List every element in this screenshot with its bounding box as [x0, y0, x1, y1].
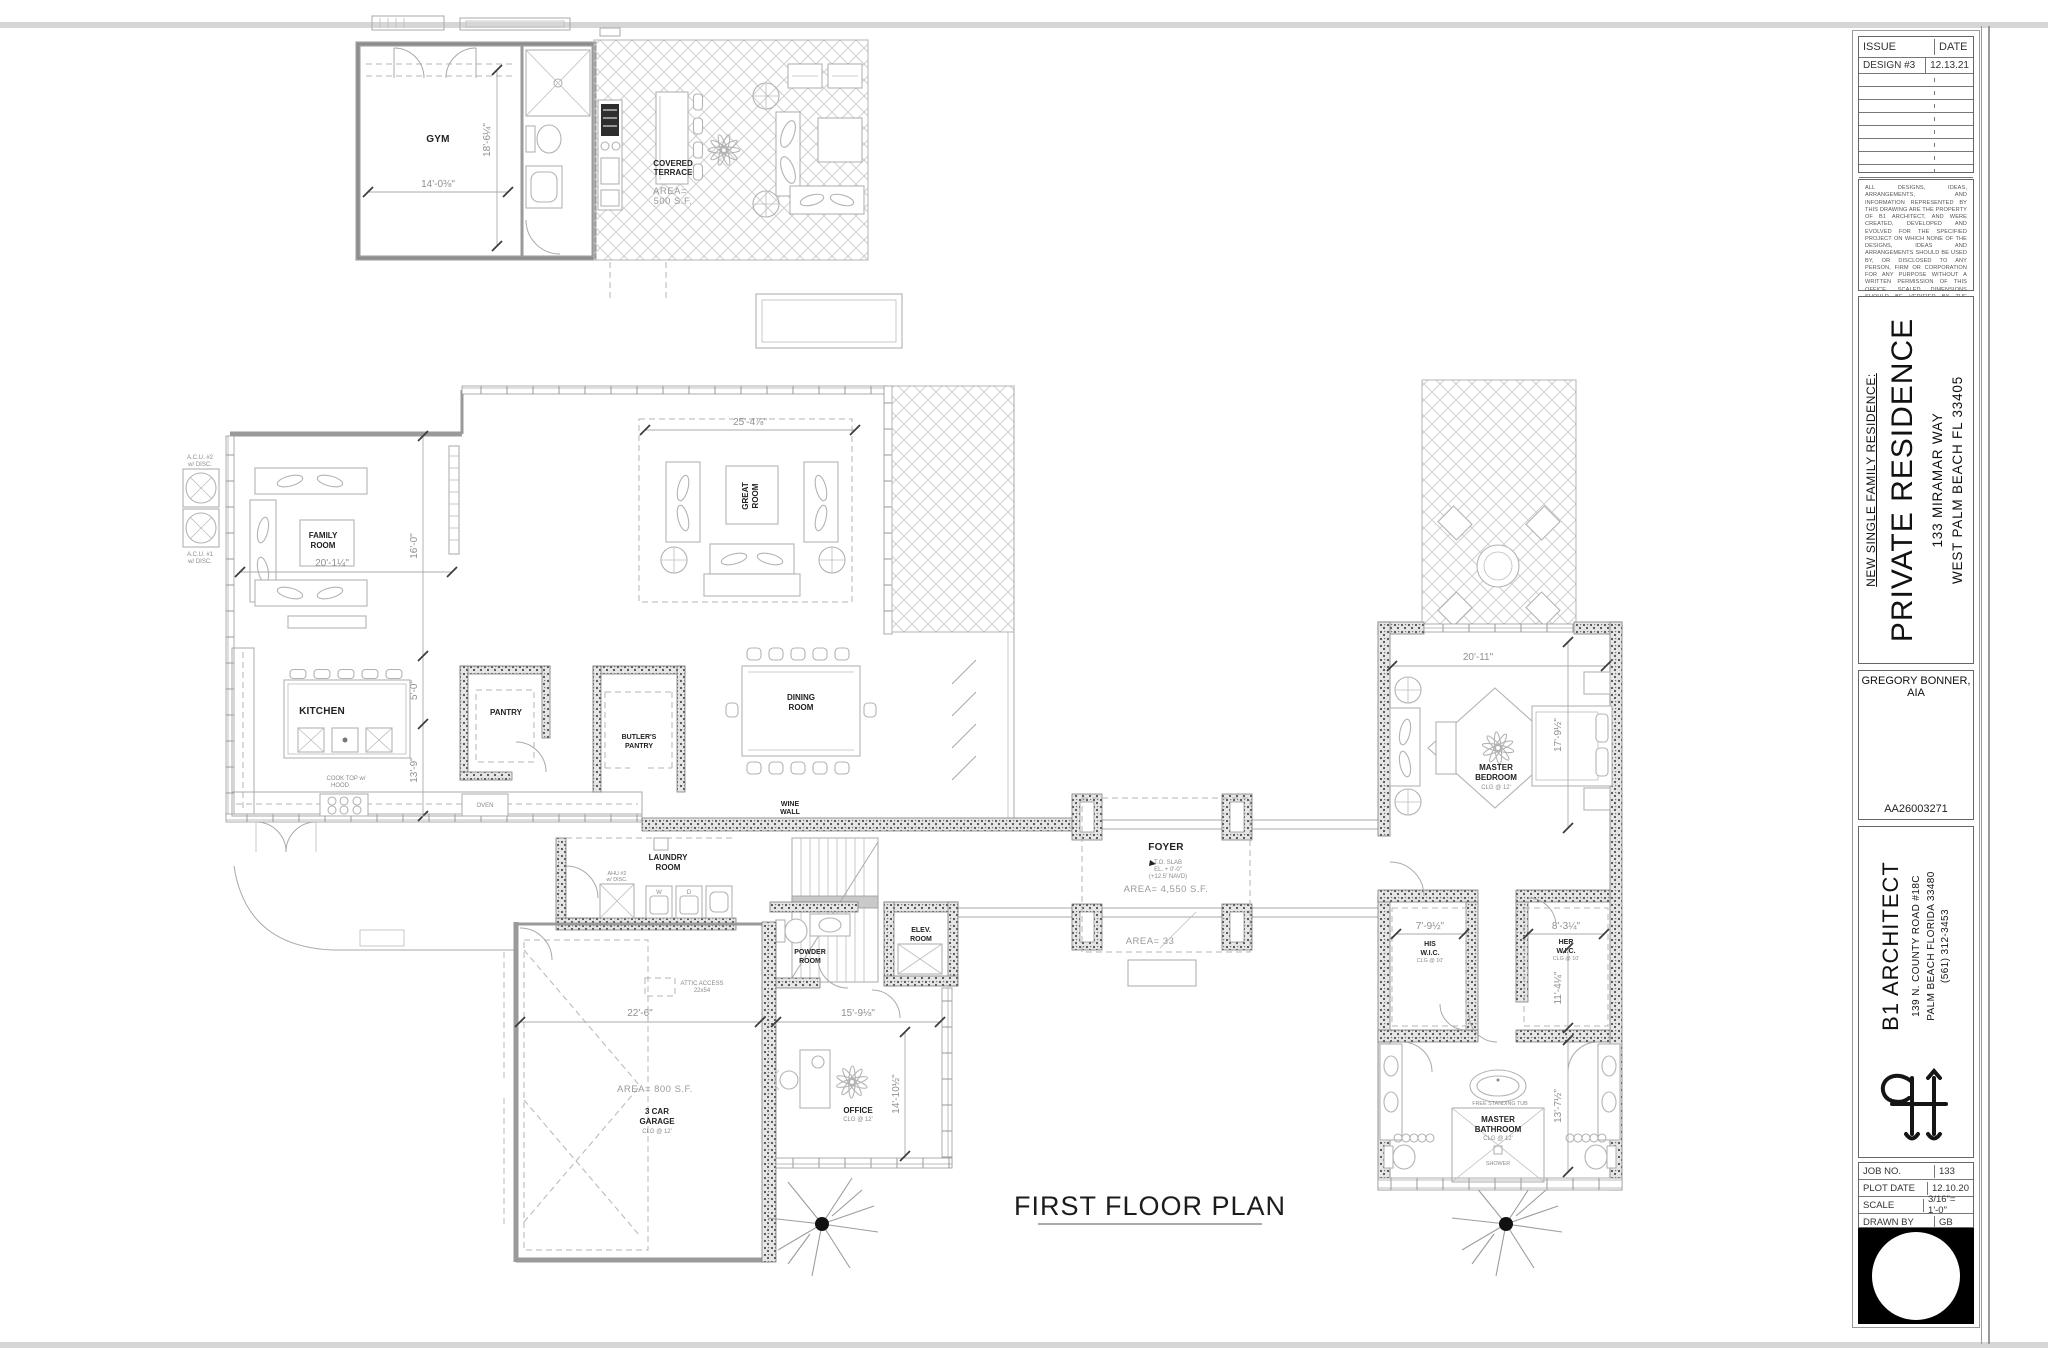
gym-bathroom — [526, 50, 590, 208]
architect-license: AA26003271 — [1859, 803, 1973, 815]
project-kicker: NEW SINGLE FAMILY RESIDENCE: — [1864, 373, 1878, 587]
job-no-row: JOB NO. 133 — [1859, 1163, 1973, 1180]
svg-text:BEDROOM: BEDROOM — [1475, 773, 1517, 782]
master-bedroom-label: MASTER — [1479, 763, 1513, 772]
svg-text:w/ DISC.: w/ DISC. — [605, 877, 627, 883]
palm-tree — [768, 1178, 878, 1276]
his-wic: HIS W.I.C. CLG @ 10' 7'-9½" — [1391, 908, 1469, 1030]
her-wic: HER W.I.C. CLG @ 10' 8'-3¼" 11'-4¼" — [1523, 898, 1609, 1033]
svg-text:EL. + 0'-0": EL. + 0'-0" — [1154, 867, 1182, 873]
svg-text:16'-0": 16'-0" — [409, 533, 420, 559]
powder-label: POWDER — [794, 949, 826, 956]
pool — [756, 294, 902, 348]
date-col: DATE — [1935, 39, 1972, 55]
svg-text:ROOM: ROOM — [656, 863, 681, 872]
project-address1: 133 MIRAMAR WAY — [1928, 412, 1948, 547]
issue-row: DESIGN #3 12.13.21 — [1859, 58, 1973, 74]
cooktop-label: COOK TOP w/ — [326, 776, 365, 782]
foyer-label: FOYER — [1148, 842, 1184, 853]
sheet-logo — [1858, 1228, 1974, 1324]
svg-text:CLG @ 12': CLG @ 12' — [1481, 785, 1511, 791]
office: OFFICE CLG @ 12' 15'-9⅛" 14'-10½" — [771, 988, 952, 1168]
great-width-dim: 25'-4⅞" — [733, 417, 767, 428]
his-wic-dim: 7'-9½" — [1416, 921, 1445, 932]
architect-box: GREGORY BONNER, AIA AA26003271 — [1858, 670, 1974, 820]
project-address2: WEST PALM BEACH FL 33405 — [1948, 376, 1968, 584]
master-height-dim: 17'-9½" — [1553, 718, 1564, 752]
architect-name: GREGORY BONNER, AIA — [1859, 675, 1973, 699]
office-width-dim: 15'-9⅛" — [841, 1008, 875, 1019]
issue-row-empty — [1859, 126, 1973, 139]
svg-text:w/ DISC.: w/ DISC. — [187, 559, 212, 565]
info-table: JOB NO. 133 PLOT DATE 12.10.20 SCALE 3/1… — [1858, 1162, 1974, 1228]
tub-label: FREE STANDING TUB — [1472, 1101, 1528, 1107]
scale-row: SCALE 3/16"= 1'-0" — [1859, 1197, 1973, 1214]
svg-text:ROOM: ROOM — [789, 703, 814, 712]
svg-text:ROOM: ROOM — [751, 483, 760, 508]
bath-height-dim: 13'-7½" — [1553, 1089, 1564, 1123]
gallery: WINE WALL — [642, 801, 1380, 917]
issue-col: ISSUE — [1859, 39, 1935, 55]
office-label: OFFICE — [843, 1106, 873, 1115]
garage-label: 3 CAR — [645, 1107, 669, 1116]
floor-plan-svg: GYM 14'-0⅜" 18'-6¼" — [0, 0, 1855, 1365]
laundry-room: LAUNDRY ROOM AHU #2 w/ DISC. W D — [556, 838, 736, 930]
gym-width-dim: 14'-0⅜" — [421, 179, 455, 190]
butlers-pantry: BUTLER'S PANTRY — [593, 666, 685, 792]
svg-text:13'-9": 13'-9" — [409, 757, 420, 783]
plan-title: FIRST FLOOR PLAN — [1014, 1191, 1286, 1224]
issue-table-header: ISSUE DATE — [1859, 37, 1973, 58]
her-wic-height-dim: 11'-4¼" — [1552, 971, 1564, 1005]
shower-label: SHOWER — [1486, 1161, 1510, 1167]
svg-text:CLG @ 12': CLG @ 12' — [1483, 1136, 1513, 1142]
issue-table: ISSUE DATE DESIGN #3 12.13.21 — [1858, 36, 1974, 173]
dining-room: DINING ROOM — [726, 648, 976, 780]
svg-text:w/ DISC.: w/ DISC. — [187, 462, 212, 468]
ac-units: A.C.U. #2 w/ DISC. A.C.U. #1 w/ DISC. — [183, 455, 219, 565]
svg-text:500 S.F.: 500 S.F. — [654, 196, 693, 207]
butlers-pantry-label: BUTLER'S — [622, 734, 657, 741]
courtyard-terrace — [1422, 380, 1576, 626]
pantry-label: PANTRY — [490, 708, 523, 717]
left-dim-chain: 16'-0" 5'-0" 13'-9" — [409, 431, 428, 821]
dining-room-label: DINING — [787, 693, 815, 702]
project-name: PRIVATE RESIDENCE — [1886, 318, 1920, 642]
kitchen-label: KITCHEN — [299, 706, 345, 717]
svg-text:ROOM: ROOM — [910, 936, 932, 943]
svg-text:FIRST FLOOR PLAN: FIRST FLOOR PLAN — [1014, 1191, 1286, 1221]
family-width-dim: 20'-1¼" — [315, 557, 349, 569]
gym-height-dim: 18'-6¼" — [481, 123, 493, 157]
slab-note: T.O. SLAB — [1154, 860, 1182, 866]
svg-text:5'-0": 5'-0" — [409, 680, 420, 700]
firm-address2: PALM BEACH FLORIDA 33480 — [1925, 871, 1940, 1020]
svg-text:(+12.5' NAVD): (+12.5' NAVD) — [1149, 874, 1187, 880]
issue-row-empty — [1859, 87, 1973, 100]
covered-terrace: COVERED TERRACE AREA= 500 S.F. — [594, 40, 868, 300]
issue-row-empty — [1859, 113, 1973, 126]
washer-label: W — [656, 890, 662, 896]
palm-tree — [1452, 1178, 1562, 1276]
his-wic-label: HIS — [1424, 941, 1436, 948]
svg-text:W.I.C.: W.I.C. — [1420, 950, 1439, 957]
firm-monogram-icon — [1874, 1068, 1958, 1154]
issue-row-empty — [1859, 100, 1973, 113]
issue-row-empty — [1859, 165, 1973, 178]
garage: AREA= 800 S.F. 3 CAR GARAGE CLG @ 12' 22… — [504, 922, 776, 1262]
great-room-label: GREAT — [741, 482, 750, 510]
issue-row-empty — [1859, 74, 1973, 87]
svg-text:TERRACE: TERRACE — [654, 168, 693, 177]
disclaimer-box: ALL DESIGNS, IDEAS, ARRANGEMENTS, AND IN… — [1858, 179, 1974, 291]
svg-text:CLG @ 12': CLG @ 12' — [642, 1129, 672, 1135]
master-bathroom: FREE STANDING TUB MASTER BATHROOM CLG @ … — [1380, 1035, 1620, 1182]
svg-text:CLG @ 12': CLG @ 12' — [843, 1117, 873, 1123]
svg-text:CLG @ 10': CLG @ 10' — [1417, 958, 1444, 964]
acu2-label: A.C.U. #2 — [187, 455, 214, 461]
firm-name: B1 ARCHITECT — [1878, 861, 1904, 1031]
entry-porch — [234, 822, 516, 950]
foyer: FOYER T.O. SLAB EL. + 0'-0" (+12.5' NAVD… — [1072, 794, 1252, 986]
acu1-label: A.C.U. #1 — [187, 552, 214, 558]
svg-text:PANTRY: PANTRY — [625, 743, 653, 750]
garage-area: AREA= 800 S.F. — [617, 1084, 693, 1095]
powder-room: POWDER ROOM — [770, 902, 858, 988]
laundry-label: LAUNDRY — [649, 853, 688, 862]
svg-text:WALL: WALL — [780, 809, 801, 816]
dryer-label: D — [687, 890, 692, 896]
sheet-border-line — [1981, 26, 1982, 1344]
foyer-area: AREA= 4,550 S.F. — [1124, 884, 1209, 895]
oven-label: OVEN — [476, 803, 493, 809]
covered-terrace-label: COVERED — [653, 159, 693, 168]
attic-access-note: ATTIC ACCESS — [681, 981, 724, 987]
svg-text:GARAGE: GARAGE — [639, 1117, 675, 1126]
master-bedroom: MASTER BEDROOM CLG @ 12' 20'-11" 17'-9½" — [1387, 637, 1612, 833]
family-room: FAMILY ROOM 20'-1¼" — [235, 468, 457, 628]
sheet-border-line2 — [1988, 26, 1990, 1344]
pantry: PANTRY — [460, 666, 550, 780]
master-bath-label: MASTER — [1481, 1115, 1515, 1124]
logo-circle-icon — [1872, 1232, 1960, 1320]
wine-wall-label: WINE — [781, 801, 800, 808]
firm-phone: (561) 312-3453 — [1939, 909, 1954, 983]
garage-width-dim: 22'-6" — [627, 1008, 653, 1019]
svg-text:BATHROOM: BATHROOM — [1475, 1125, 1522, 1134]
elev-label: ELEV. — [911, 927, 931, 934]
svg-text:HOOD: HOOD — [331, 783, 350, 789]
drawing-sheet: GYM 14'-0⅜" 18'-6¼" — [0, 0, 2048, 1365]
issue-row-empty — [1859, 139, 1973, 152]
family-room-label: FAMILY — [309, 531, 338, 540]
svg-text:22x54: 22x54 — [694, 988, 711, 994]
svg-text:ROOM: ROOM — [311, 541, 336, 550]
gym-label: GYM — [426, 134, 449, 145]
firm-address1: 139 N. COUNTY ROAD #18C — [1910, 875, 1925, 1017]
kitchen: KITCHEN COOK TOP w/ HOOD OVEN — [232, 648, 642, 816]
master-width-dim: 20'-11" — [1463, 652, 1494, 663]
outbuilding: GYM 14'-0⅜" 18'-6¼" — [358, 16, 620, 258]
issue-row-empty — [1859, 152, 1973, 165]
elevator-room: ELEV. ROOM — [884, 902, 958, 986]
office-height-dim: 14'-10½" — [891, 1074, 902, 1114]
svg-text:CLG @ 10': CLG @ 10' — [1553, 956, 1580, 962]
